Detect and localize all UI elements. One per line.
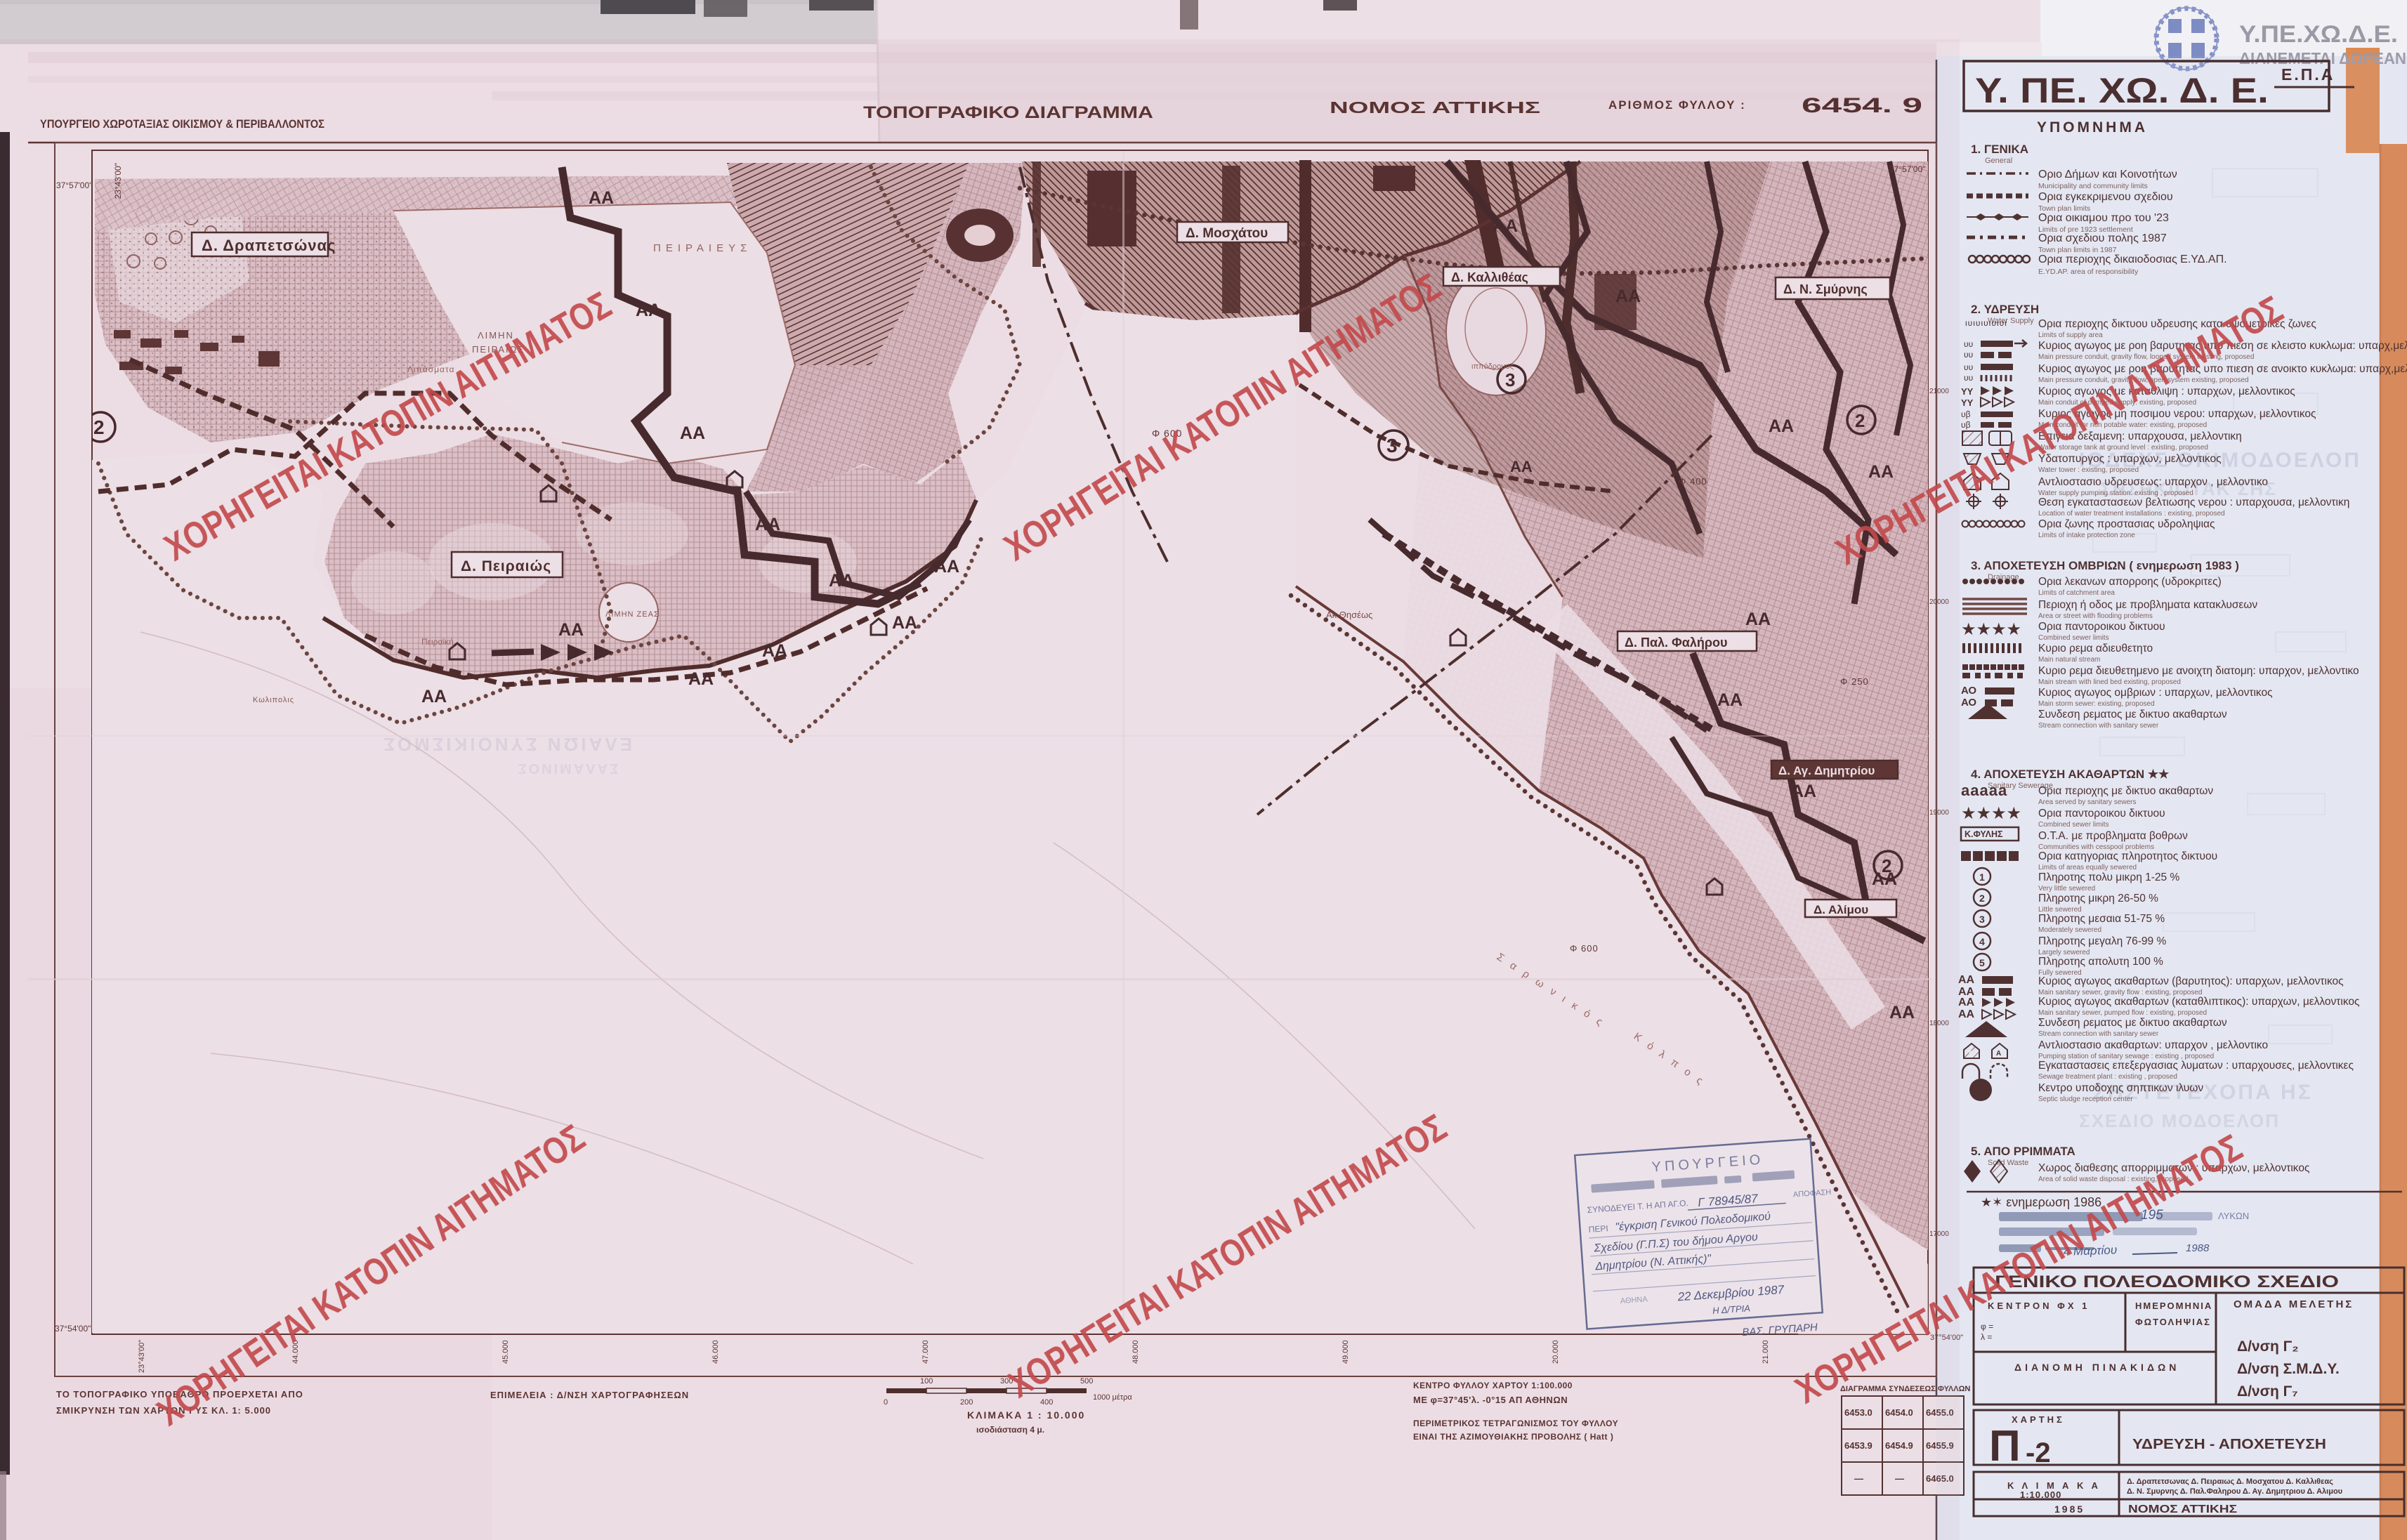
svg-text:Υ.ΠΕ.ΧΩ.Δ.Ε.: Υ.ΠΕ.ΧΩ.Δ.Ε.: [2239, 21, 2398, 48]
